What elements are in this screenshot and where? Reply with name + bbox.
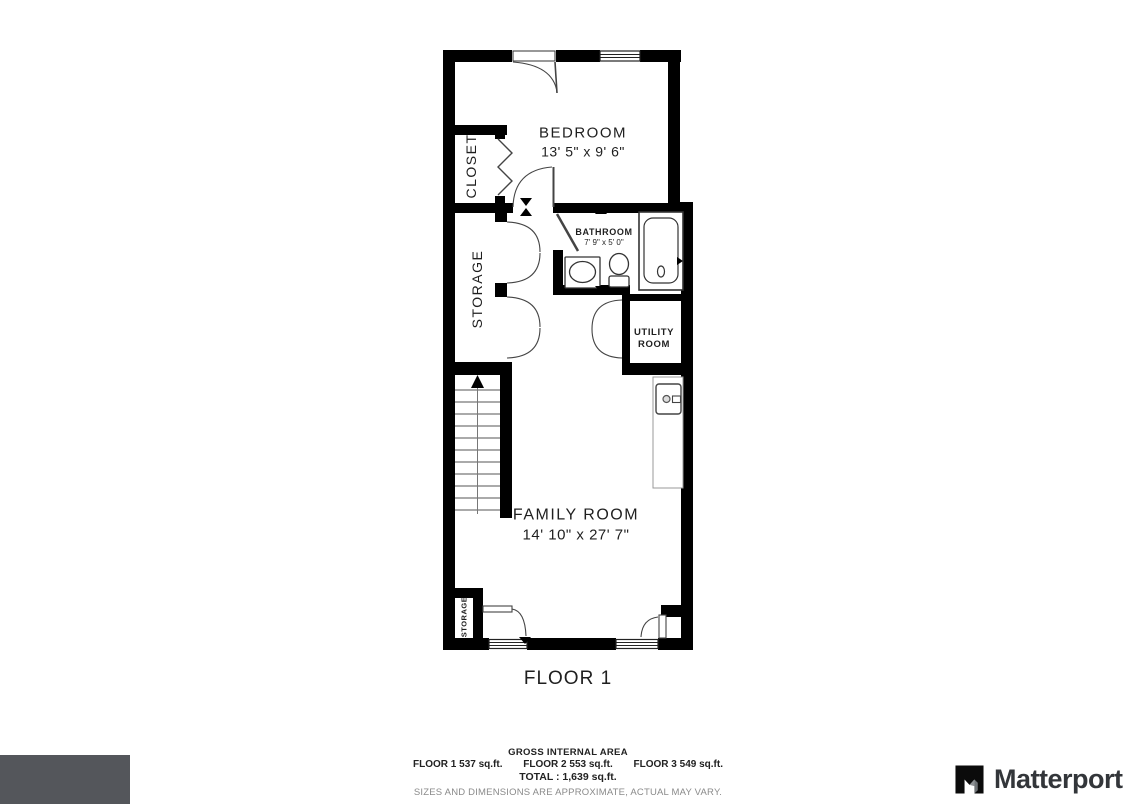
bedroom-dimensions: 13' 5" x 9' 6" — [539, 144, 627, 160]
opening-marker-down-icon — [520, 198, 532, 206]
family-room-dimensions: 14' 10" x 27' 7" — [513, 527, 639, 544]
stairs-up-arrow-icon — [471, 375, 484, 388]
disclaimer-text: SIZES AND DIMENSIONS ARE APPROXIMATE, AC… — [404, 787, 732, 798]
floor1-area: FLOOR 1 537 sq.ft. — [413, 759, 502, 770]
door-bottom-left — [483, 606, 526, 636]
storage-double-door-lower — [507, 297, 540, 358]
stairs — [455, 375, 500, 514]
bathroom-fixtures — [565, 212, 683, 290]
utility-room-label: UTILITY ROOM — [629, 327, 679, 351]
floor-plan-page: BEDROOM 13' 5" x 9' 6" CLOSET STORAGE BA… — [0, 0, 1137, 804]
toilet-icon — [609, 254, 629, 288]
bathroom-label: BATHROOM 7' 9" x 5' 0" — [575, 227, 632, 247]
window-bottom-right — [616, 640, 658, 649]
bedroom-name: BEDROOM — [539, 125, 627, 142]
family-room-label: FAMILY ROOM 14' 10" x 27' 7" — [513, 507, 639, 544]
bathtub-icon — [639, 212, 683, 290]
bedroom-label: BEDROOM 13' 5" x 9' 6" — [539, 125, 627, 160]
door-bedroom — [513, 167, 554, 207]
door-top-entry — [513, 51, 557, 93]
laundry-area — [653, 377, 683, 488]
window-bottom-left — [489, 640, 527, 649]
door-bottom-right — [641, 615, 666, 638]
bathroom-name: BATHROOM — [575, 227, 632, 237]
bright-mls-logo: bright ✦ ™ MLS — [0, 755, 130, 804]
total-area: TOTAL : 1,639 sq.ft. — [404, 771, 732, 783]
utility-double-door — [592, 300, 622, 358]
family-room-name: FAMILY ROOM — [513, 507, 639, 525]
floor2-area: FLOOR 2 553 sq.ft. — [523, 759, 612, 770]
washer-icon — [656, 384, 681, 414]
matterport-m-icon — [953, 763, 986, 796]
sink-icon — [565, 257, 600, 288]
gross-internal-area-title: GROSS INTERNAL AREA — [404, 747, 732, 758]
floor-title: FLOOR 1 — [524, 668, 612, 690]
opening-marker-up-icon — [520, 208, 532, 216]
storage-label: STORAGE — [469, 250, 485, 329]
matterport-wordmark: Matterport — [994, 764, 1123, 795]
closet-label: CLOSET — [463, 133, 479, 198]
closet-bifold-door — [498, 139, 512, 195]
area-summary: GROSS INTERNAL AREA FLOOR 1 537 sq.ft. F… — [404, 747, 732, 798]
window-top — [600, 51, 640, 61]
matterport-logo: Matterport — [953, 763, 1123, 796]
floor3-area: FLOOR 3 549 sq.ft. — [634, 759, 723, 770]
floor-areas-line: FLOOR 1 537 sq.ft. FLOOR 2 553 sq.ft. FL… — [404, 759, 732, 770]
storage-small-label: STORAGE — [460, 597, 469, 637]
storage-double-door-upper — [507, 222, 540, 283]
bathroom-dimensions: 7' 9" x 5' 0" — [575, 238, 632, 247]
